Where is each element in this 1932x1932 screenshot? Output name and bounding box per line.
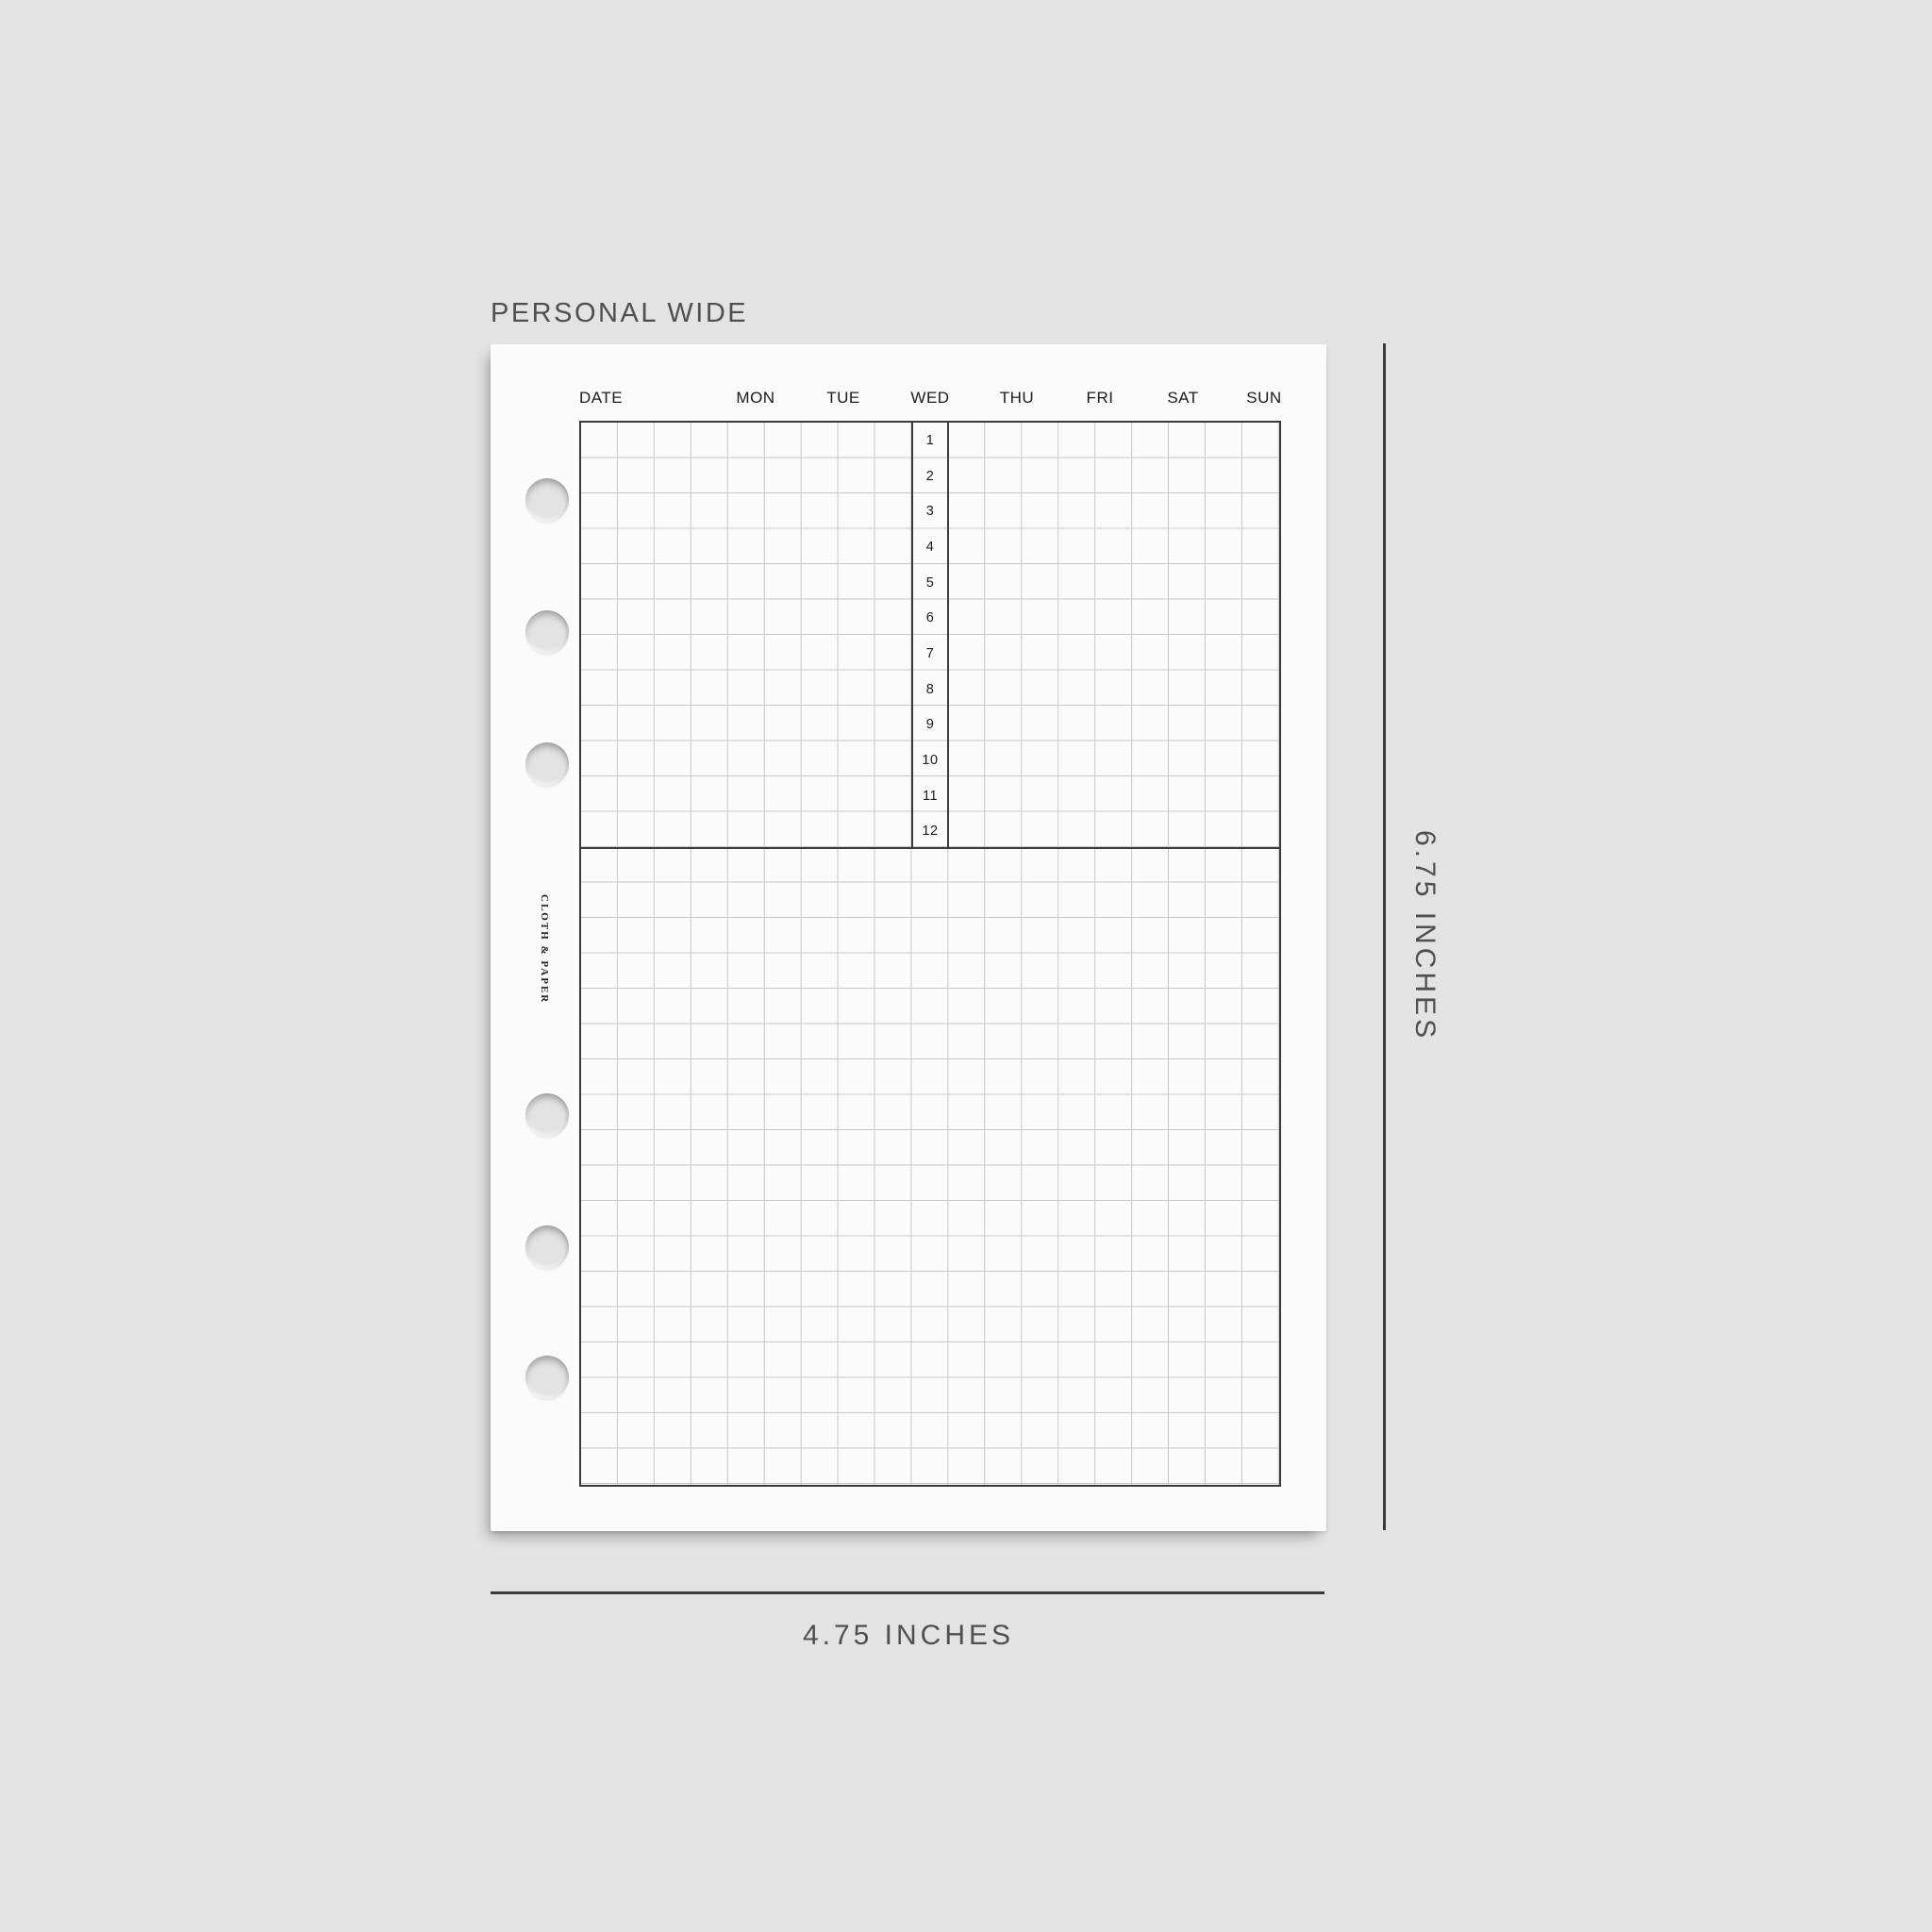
date-column-label: DATE <box>579 390 623 406</box>
day-label-mon: MON <box>736 390 774 406</box>
time-slot-12: 12 <box>913 813 947 849</box>
day-label-sun: SUN <box>1246 390 1281 406</box>
height-dimension-label: 6.75 INCHES <box>1407 811 1441 1060</box>
time-slot-6: 6 <box>913 600 947 636</box>
punch-hole-2 <box>525 610 569 654</box>
day-label-tue: TUE <box>826 390 860 406</box>
section-divider-line <box>579 847 1281 849</box>
time-slot-11: 11 <box>913 778 947 814</box>
brand-vertical-text: CLOTH & PAPER <box>532 891 557 1007</box>
width-dimension-line <box>491 1591 1324 1594</box>
day-label-wed: WED <box>910 390 949 406</box>
time-slot-9: 9 <box>913 707 947 742</box>
punch-hole-1 <box>525 478 569 522</box>
mockup-canvas: PERSONAL WIDE DATE MONTUEWEDTHUFRISATSUN… <box>0 0 1932 1932</box>
time-slot-2: 2 <box>913 458 947 494</box>
punch-hole-6 <box>525 1356 569 1399</box>
weekly-grid: 123456789101112 <box>579 421 1281 1487</box>
day-label-sat: SAT <box>1167 390 1198 406</box>
time-slot-7: 7 <box>913 636 947 672</box>
page-size-title: PERSONAL WIDE <box>491 300 748 327</box>
width-dimension-label: 4.75 INCHES <box>803 1620 1014 1652</box>
height-dimension-line <box>1383 343 1386 1530</box>
punch-hole-4 <box>525 1093 569 1137</box>
time-slot-3: 3 <box>913 493 947 529</box>
day-header-row: DATE MONTUEWEDTHUFRISATSUN <box>491 390 1326 408</box>
time-slot-4: 4 <box>913 529 947 565</box>
day-label-fri: FRI <box>1087 390 1114 406</box>
day-label-thu: THU <box>1000 390 1034 406</box>
time-column: 123456789101112 <box>911 423 949 849</box>
time-slot-8: 8 <box>913 672 947 708</box>
time-slot-5: 5 <box>913 565 947 601</box>
time-slot-10: 10 <box>913 742 947 778</box>
planner-page: DATE MONTUEWEDTHUFRISATSUN 1234567891011… <box>491 344 1326 1531</box>
punch-hole-3 <box>525 742 569 786</box>
time-slot-1: 1 <box>913 423 947 458</box>
punch-hole-5 <box>525 1225 569 1269</box>
